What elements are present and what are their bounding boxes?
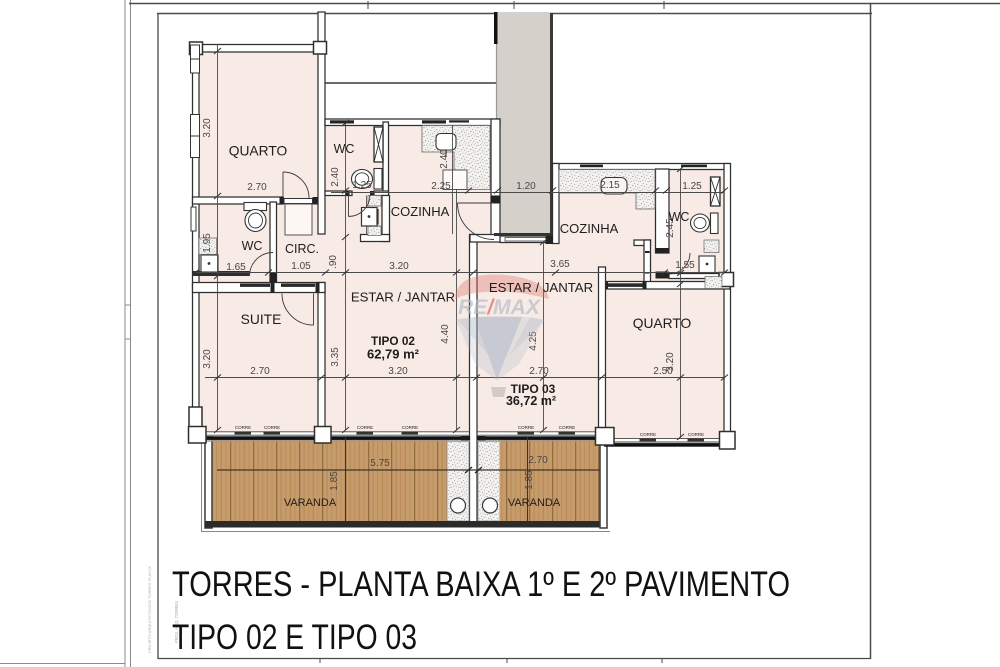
svg-text:CORRE: CORRE: [688, 432, 704, 437]
svg-text:1.95: 1.95: [202, 233, 213, 253]
svg-text:2.40: 2.40: [439, 149, 450, 169]
svg-text:CORRE: CORRE: [518, 425, 534, 430]
svg-text:SUITE: SUITE: [241, 312, 282, 327]
svg-text:3.20: 3.20: [665, 352, 676, 372]
svg-text:PROJETO ARQUITETONICO TORRES P: PROJETO ARQUITETONICO TORRES PLANTA: [147, 566, 152, 653]
svg-text:3.65: 3.65: [550, 259, 570, 270]
svg-text:QUARTO: QUARTO: [633, 316, 692, 331]
svg-text:.90: .90: [328, 255, 339, 269]
svg-text:2.40: 2.40: [330, 167, 341, 187]
svg-text:1.25: 1.25: [352, 180, 372, 191]
svg-text:ESTAR / JANTAR: ESTAR / JANTAR: [489, 280, 593, 295]
svg-text:1.65: 1.65: [226, 262, 246, 273]
svg-text:CIRC.: CIRC.: [285, 242, 319, 256]
svg-text:2.70: 2.70: [250, 366, 270, 377]
svg-text:VARANDA: VARANDA: [284, 497, 337, 509]
svg-text:VARANDA: VARANDA: [508, 497, 561, 509]
svg-text:CORRE: CORRE: [559, 425, 575, 430]
svg-text:WC: WC: [669, 210, 690, 224]
svg-text:1.55: 1.55: [675, 260, 695, 271]
svg-text:COZINHA: COZINHA: [560, 221, 619, 236]
svg-text:2.70: 2.70: [529, 366, 549, 377]
svg-text:CORRE: CORRE: [264, 425, 280, 430]
svg-text:CORRE: CORRE: [402, 425, 418, 430]
svg-text:1.85: 1.85: [329, 471, 340, 491]
svg-text:3.20: 3.20: [202, 349, 213, 369]
svg-text:3.35: 3.35: [330, 347, 341, 367]
svg-text:WC: WC: [242, 239, 263, 253]
svg-text:3.20: 3.20: [202, 118, 213, 138]
svg-text:3.20: 3.20: [388, 366, 408, 377]
svg-text:2.70: 2.70: [247, 182, 267, 193]
svg-text:CORRE: CORRE: [235, 425, 251, 430]
svg-text:36,72 m²: 36,72 m²: [506, 394, 556, 408]
svg-text:1.20: 1.20: [516, 181, 536, 192]
svg-text:ESTAR / JANTAR: ESTAR / JANTAR: [351, 290, 455, 305]
svg-text:5.75: 5.75: [370, 458, 390, 469]
svg-text:1.85: 1.85: [524, 470, 535, 490]
svg-text:WC: WC: [334, 142, 355, 156]
svg-text:1.05: 1.05: [291, 261, 311, 272]
svg-text:4.40: 4.40: [440, 324, 451, 344]
svg-text:CORRE: CORRE: [640, 432, 656, 437]
svg-text:62,79 m²: 62,79 m²: [367, 347, 420, 362]
svg-text:2.15: 2.15: [600, 180, 620, 191]
svg-text:2.25: 2.25: [431, 181, 451, 192]
svg-text:QUARTO: QUARTO: [229, 144, 288, 159]
svg-text:RE/MAX: RE/MAX: [458, 296, 542, 319]
svg-text:TORRES - PLANTA BAIXA 1º E 2º: TORRES - PLANTA BAIXA 1º E 2º PAVIMENTO: [172, 565, 790, 604]
svg-text:1.25: 1.25: [682, 181, 702, 192]
svg-text:3.20: 3.20: [389, 261, 409, 272]
svg-text:CORRE: CORRE: [357, 425, 373, 430]
svg-text:TIPO 02 E TIPO 03: TIPO 02 E TIPO 03: [172, 618, 417, 657]
svg-text:COZINHA: COZINHA: [391, 204, 450, 219]
svg-text:2.70: 2.70: [528, 455, 548, 466]
